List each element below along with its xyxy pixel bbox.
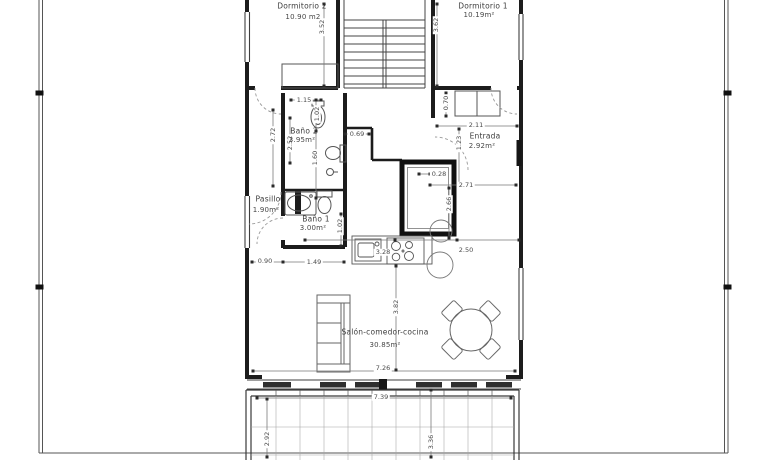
room-area-dormitorio2: 10.90 m2 — [285, 13, 320, 21]
room-label-dormitorio1: Dormitorio 1 — [458, 2, 508, 11]
room-area-bano1: 3.00m² — [300, 224, 326, 232]
room-label-bano1: Baño 1 — [302, 215, 329, 224]
door-arc-bano1 — [257, 218, 283, 244]
dim-kitchen-to-wall: 2.50 — [457, 247, 475, 254]
room-label-bano2: Baño 2 — [290, 127, 317, 136]
room-area-dormitorio1: 10.19m² — [463, 11, 494, 19]
towel-ring-icon — [327, 169, 334, 176]
room-area-pasillo: 1.90m² — [253, 206, 279, 214]
door-arc-dormitorio1 — [491, 88, 517, 114]
dim-bano1-depth: 1.02 — [337, 217, 344, 235]
dim-salon-width: 7.26 — [374, 365, 392, 372]
dim-bano2-width: 1.15 — [295, 97, 313, 104]
walls — [247, 0, 522, 379]
room-area-entrada: 2.92m² — [469, 142, 495, 150]
room-label-salon: Salón-comedor-cocina — [341, 328, 428, 337]
dim-hall-depth: 2.66 — [446, 195, 453, 213]
dim-entrada-depth: 1.23 — [456, 134, 463, 152]
dim-bano2-inner: 1.60 — [312, 149, 319, 167]
dim-closet-depth: 0.70 — [443, 94, 450, 112]
toilet-icon — [326, 147, 341, 160]
dim-bano1-width: 1.49 — [305, 259, 323, 266]
dim-pasillo-width: 0.90 — [256, 258, 274, 265]
dim-terrace-depth-left: 2.92 — [264, 430, 271, 448]
room-label-entrada: Entrada — [470, 132, 501, 141]
room-area-salon: 30.85m² — [369, 341, 400, 349]
dim-salon-depth: 3.82 — [393, 298, 400, 316]
room-label-dormitorio2: Dormitorio 2 — [277, 2, 327, 11]
dim-kitchen-run: 3.28 — [374, 249, 392, 256]
bathroom1-fixtures — [285, 191, 332, 215]
dim-terrace-depth-mid: 3.36 — [428, 433, 435, 451]
dim-hall-width: 2.71 — [457, 182, 475, 189]
entry-door-frame — [517, 140, 522, 166]
room-label-pasillo: Pasillo — [256, 195, 281, 204]
dim-bano2-offset: 0.69 — [348, 131, 366, 138]
dim-entrada-width: 2.11 — [467, 122, 485, 129]
room-area-bano2: 3.95m² — [289, 136, 315, 144]
floor-plan-page: Dormitorio 2 10.90 m2 Dormitorio 1 10.19… — [0, 0, 770, 460]
terrace-tile-grid — [251, 396, 514, 460]
dim-dorm1-depth: 3.62 — [433, 16, 440, 34]
floor-plan-drawing — [0, 0, 770, 460]
dim-bano2-depth: 2.72 — [270, 126, 277, 144]
toilet-icon — [318, 197, 331, 214]
dim-terrace-width: 7.39 — [372, 394, 390, 401]
dim-bano2-fixture: 1.02 — [314, 105, 321, 123]
staircase — [344, 0, 425, 88]
dim-wall-offset: 0.28 — [430, 171, 448, 178]
hob-icon — [387, 238, 424, 264]
closet-dormitorio2 — [282, 64, 338, 88]
stool-icon — [427, 252, 453, 278]
door-arc-bano2 — [255, 88, 281, 114]
